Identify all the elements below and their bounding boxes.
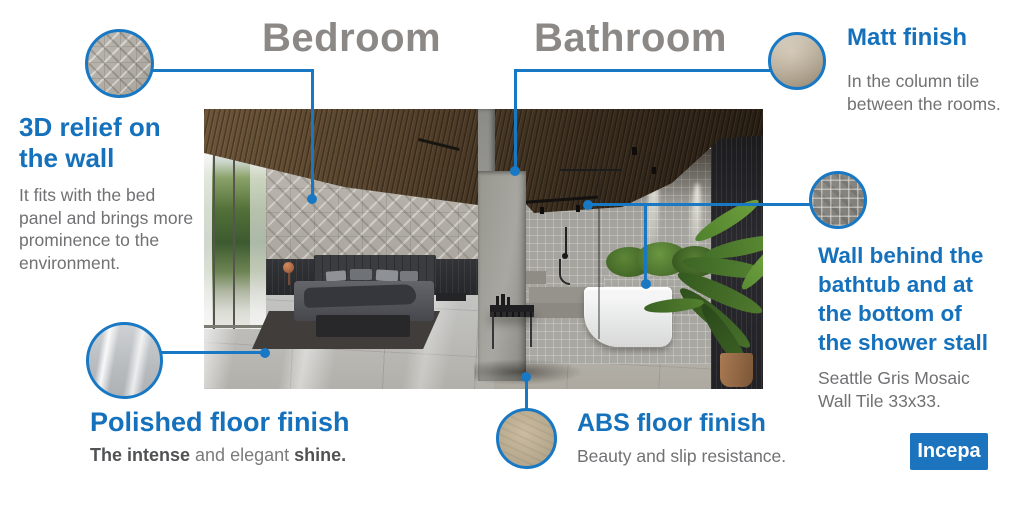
shower-hose: [559, 259, 570, 285]
bed-pillow: [326, 270, 347, 281]
abs-tile-swatch-icon: [496, 408, 557, 469]
bed-foot-bench: [316, 315, 410, 337]
table-lamp: [288, 271, 290, 285]
bench-leg: [530, 317, 532, 347]
shower-glass-rail: [560, 169, 622, 171]
floating-nightstand: [436, 293, 466, 301]
leader-line-matt: [514, 69, 517, 171]
bed-duvet: [304, 284, 417, 308]
track-light: [576, 205, 580, 212]
interior-photo: [204, 109, 763, 389]
abs-heading: ABS floor finish: [577, 409, 766, 437]
relief-heading: 3D relief on the wall: [19, 112, 161, 174]
polished-body: The intense and elegant shine.: [90, 445, 346, 466]
window-sill: [204, 325, 266, 328]
bed-pillow: [400, 271, 418, 281]
relief-tile-swatch-icon: [85, 29, 154, 98]
polished-tile-swatch-icon: [86, 322, 163, 399]
bathroom-title: Bathroom: [534, 16, 727, 60]
leader-line-mosaic: [644, 203, 647, 283]
leader-dot-abs-floor: [521, 372, 531, 382]
polished-heading: Polished floor finish: [90, 407, 350, 437]
bedroom-title: Bedroom: [262, 16, 441, 60]
wall-mosaic-body: Seattle Gris Mosaic Wall Tile 33x33.: [818, 367, 970, 412]
shower-fixture: [565, 227, 567, 255]
curtain: [250, 149, 266, 329]
mosaic-tile-swatch-icon: [809, 171, 867, 229]
ceiling-spot: [632, 147, 637, 155]
plant-pot: [720, 353, 753, 387]
track-light: [540, 207, 544, 214]
leader-line-mosaic: [588, 203, 812, 206]
leader-dot-shower-wall: [583, 200, 593, 210]
polished-body-bold: The intense: [90, 445, 190, 465]
shower-glass-edge: [598, 169, 600, 339]
relief-body: It fits with the bed panel and brings mo…: [19, 184, 219, 274]
table-lamp-shade: [283, 262, 294, 273]
bed-pillow: [350, 269, 372, 280]
window-frame: [233, 153, 235, 329]
bench-leg: [492, 317, 494, 349]
ceiling-spot: [652, 167, 656, 174]
column-tile-face: [478, 171, 526, 381]
bottle: [501, 294, 505, 305]
leader-dot-column: [510, 166, 520, 176]
matt-body: In the column tile between the rooms.: [847, 70, 1001, 115]
leader-line-polished: [158, 351, 268, 354]
wall-mosaic-heading: Wall behind the bathtub and at the botto…: [818, 241, 988, 357]
leader-line-relief: [150, 69, 314, 72]
infographic-canvas: Bedroom Bathroom: [0, 0, 1024, 510]
leader-line-relief: [311, 69, 314, 199]
leader-dot-polished-floor: [260, 348, 270, 358]
bottle: [496, 296, 499, 305]
abs-body: Beauty and slip resistance.: [577, 445, 786, 468]
bathroom-bench-slats: [490, 312, 534, 317]
bed-pillow: [376, 269, 399, 281]
leader-dot-bathtub-wall: [641, 279, 651, 289]
polished-body-bold: shine.: [294, 445, 346, 465]
bathroom-bench: [490, 305, 534, 312]
polished-body-regular: and elegant: [190, 445, 294, 465]
matt-heading: Matt finish: [847, 24, 967, 52]
matt-tile-swatch-icon: [768, 32, 826, 90]
incepa-logo: Incepa: [910, 433, 988, 470]
window-frame: [213, 149, 215, 329]
bottle: [507, 297, 510, 305]
leader-line-matt: [516, 69, 770, 72]
curtain: [204, 149, 212, 329]
leader-dot-relief-wall: [307, 194, 317, 204]
